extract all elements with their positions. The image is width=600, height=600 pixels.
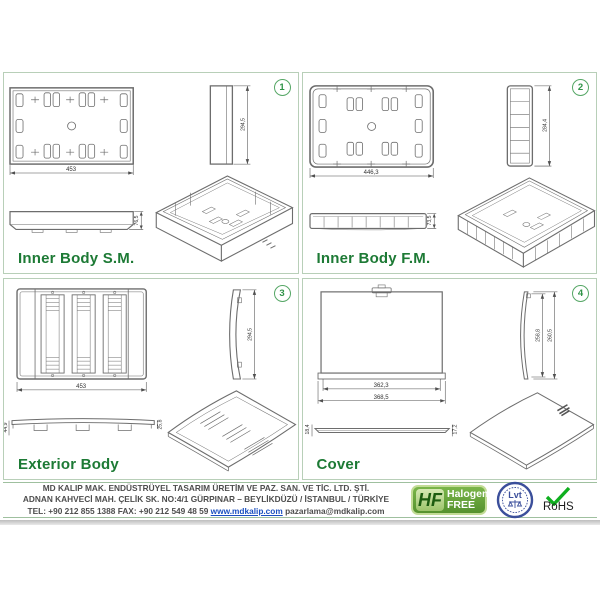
rohs-logo: RoHS xyxy=(543,486,589,514)
dim-height-label: 284,4 xyxy=(542,119,548,132)
panel-inner-body-sm: 453 294,5 76,5 1 Inner Body S.M. xyxy=(3,72,299,274)
dim-width-label: 453 xyxy=(66,167,77,173)
dim-depth-label: 73,5 xyxy=(427,215,433,225)
bottom-shadow-bar xyxy=(0,520,600,525)
panel-number-badge: 3 xyxy=(274,285,291,302)
dim-depth-left-label: 44,9 xyxy=(4,422,9,432)
cover-drawing: 362,3 368,5 258,8 260,5 18,4 17,2 xyxy=(303,279,597,479)
dim-height-label: 294,5 xyxy=(240,118,246,131)
dim-depth-right-label: 25,8 xyxy=(157,419,163,429)
panel-title: Cover xyxy=(317,456,361,473)
inner-body-fm-drawing: 446,3 284,4 73,5 xyxy=(303,73,597,273)
company-name-line: MD KALIP MAK. ENDÜSTRÜYEL TASARIM ÜRETİM… xyxy=(11,483,401,494)
panel-title: Inner Body F.M. xyxy=(317,250,431,267)
panel-number-badge: 1 xyxy=(274,79,291,96)
dim-width-outer-label: 368,5 xyxy=(373,395,389,401)
dim-depth-label: 76,5 xyxy=(134,215,140,225)
panel-title: Inner Body S.M. xyxy=(18,250,134,267)
dim-width-inner-label: 362,3 xyxy=(373,383,389,389)
footer: MD KALIP MAK. ENDÜSTRÜYEL TASARIM ÜRETİM… xyxy=(3,482,597,518)
dim-width-label: 446,3 xyxy=(363,170,379,176)
email-text: pazarlama@mdkalip.com xyxy=(285,506,384,516)
website-link[interactable]: www.mdkalip.com xyxy=(211,506,283,516)
certification-logos: HF Halogen FREE Lvt RoHS xyxy=(411,481,589,519)
dim-height-outer-label: 260,5 xyxy=(547,329,553,342)
panel-exterior-body: 453 294,5 44,9 25,8 3 Exterior Body xyxy=(3,278,299,480)
panel-number-badge: 4 xyxy=(572,285,589,302)
dim-height-inner-label: 258,8 xyxy=(535,329,541,342)
hf-abbr-text: HF xyxy=(416,489,444,511)
tel-fax-text: TEL: +90 212 855 1388 FAX: +90 212 549 4… xyxy=(28,506,209,516)
halogen-free-logo: HF Halogen FREE xyxy=(411,485,487,515)
dim-depth-left-label: 18,4 xyxy=(304,424,310,434)
lvt-seal-icon: Lvt xyxy=(496,481,534,519)
panel-title: Exterior Body xyxy=(18,456,119,473)
dim-height-label: 294,5 xyxy=(247,328,253,341)
rohs-label: RoHS xyxy=(543,502,574,514)
lvt-text: Lvt xyxy=(508,490,522,500)
datasheet-page: 453 294,5 76,5 1 Inner Body S.M. xyxy=(0,0,600,600)
inner-body-sm-drawing: 453 294,5 76,5 xyxy=(4,73,298,273)
dim-depth-right-label: 17,2 xyxy=(452,424,458,434)
panel-cover: 362,3 368,5 258,8 260,5 18,4 17,2 4 Cove… xyxy=(302,278,598,480)
panel-number-badge: 2 xyxy=(572,79,589,96)
contact-line: TEL: +90 212 855 1388 FAX: +90 212 549 4… xyxy=(11,506,401,517)
panel-inner-body-fm: 446,3 284,4 73,5 2 Inner Body F.M. xyxy=(302,72,598,274)
company-info: MD KALIP MAK. ENDÜSTRÜYEL TASARIM ÜRETİM… xyxy=(11,483,401,517)
exterior-body-drawing: 453 294,5 44,9 25,8 xyxy=(4,279,298,479)
hf-label: Halogen FREE xyxy=(447,489,488,510)
company-address-line: ADNAN KAHVECİ MAH. ÇELİK SK. NO:4/1 GÜRP… xyxy=(11,494,401,505)
dim-width-label: 453 xyxy=(76,384,87,390)
drawing-grid: 453 294,5 76,5 1 Inner Body S.M. xyxy=(3,72,597,480)
